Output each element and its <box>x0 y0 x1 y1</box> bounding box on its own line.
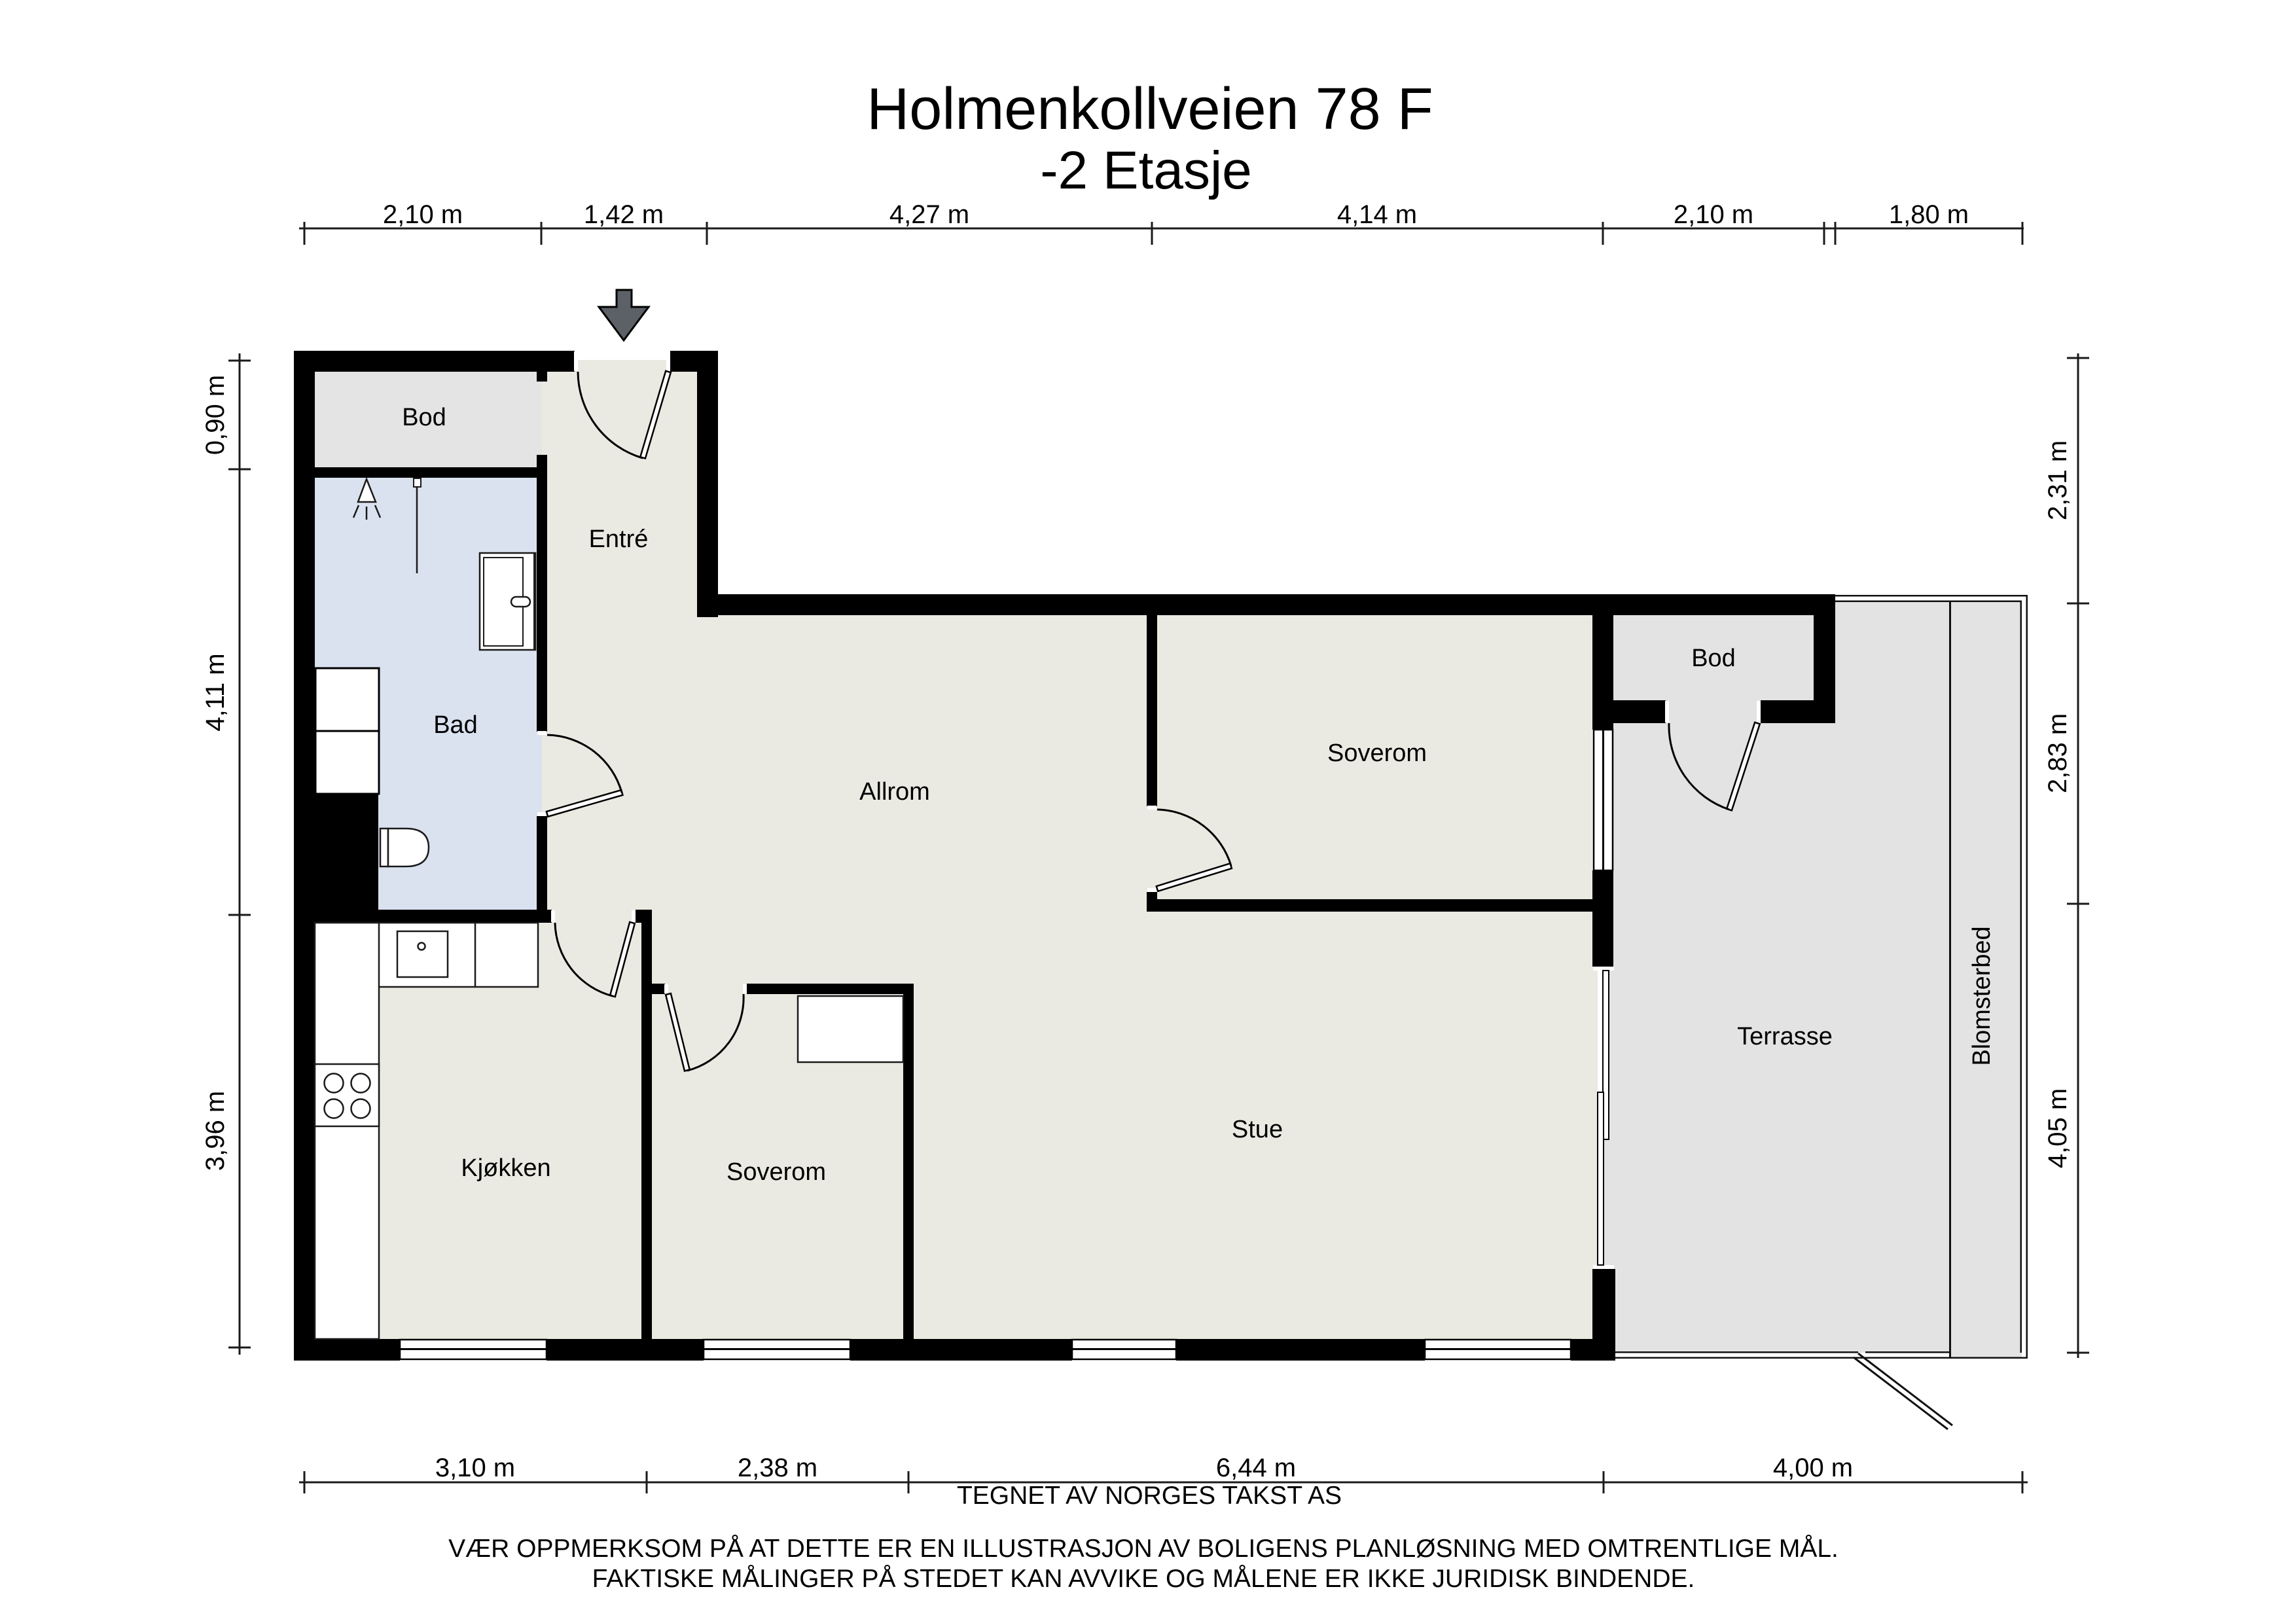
svg-text:2,38 m: 2,38 m <box>738 1454 817 1482</box>
svg-text:6,44 m: 6,44 m <box>1216 1454 1296 1482</box>
svg-text:Entré: Entré <box>589 526 649 553</box>
svg-text:4,00 m: 4,00 m <box>1773 1454 1853 1482</box>
svg-text:Holmenkollveien 78 F: Holmenkollveien 78 F <box>867 77 1433 142</box>
svg-text:VÆR OPPMERKSOM PÅ AT DETTE ER: VÆR OPPMERKSOM PÅ AT DETTE ER EN ILLUSTR… <box>448 1534 1839 1563</box>
svg-text:Allrom: Allrom <box>859 778 930 806</box>
svg-text:TEGNET AV NORGES TAKST AS: TEGNET AV NORGES TAKST AS <box>957 1482 1342 1510</box>
svg-text:4,11 m: 4,11 m <box>201 653 230 731</box>
svg-text:4,14 m: 4,14 m <box>1337 200 1417 229</box>
svg-text:Kjøkken: Kjøkken <box>461 1154 550 1182</box>
svg-text:Soverom: Soverom <box>726 1158 826 1186</box>
svg-text:FAKTISKE MÅLINGER PÅ STEDET KA: FAKTISKE MÅLINGER PÅ STEDET KAN AVVIKE O… <box>592 1564 1695 1593</box>
svg-text:4,27 m: 4,27 m <box>889 200 969 229</box>
svg-text:4,05 m: 4,05 m <box>2043 1088 2072 1168</box>
svg-text:Terrasse: Terrasse <box>1737 1023 1833 1050</box>
svg-text:2,10 m: 2,10 m <box>383 200 463 229</box>
svg-text:Soverom: Soverom <box>1327 740 1427 767</box>
svg-text:Blomsterbed: Blomsterbed <box>1968 926 1996 1065</box>
svg-text:2,10 m: 2,10 m <box>1674 200 1753 229</box>
svg-text:Stue: Stue <box>1232 1116 1283 1143</box>
svg-text:2,83 m: 2,83 m <box>2043 713 2072 793</box>
svg-text:1,42 m: 1,42 m <box>584 200 664 229</box>
svg-text:Bad: Bad <box>433 711 478 739</box>
svg-text:3,96 m: 3,96 m <box>201 1091 230 1171</box>
svg-text:Bod: Bod <box>402 404 446 431</box>
svg-text:0,90 m: 0,90 m <box>201 375 230 455</box>
svg-text:Bod: Bod <box>1691 645 1736 672</box>
svg-text:2,31 m: 2,31 m <box>2043 440 2072 520</box>
svg-text:-2 Etasje: -2 Etasje <box>1040 141 1252 200</box>
svg-text:1,80 m: 1,80 m <box>1889 200 1969 229</box>
svg-text:3,10 m: 3,10 m <box>435 1454 515 1482</box>
